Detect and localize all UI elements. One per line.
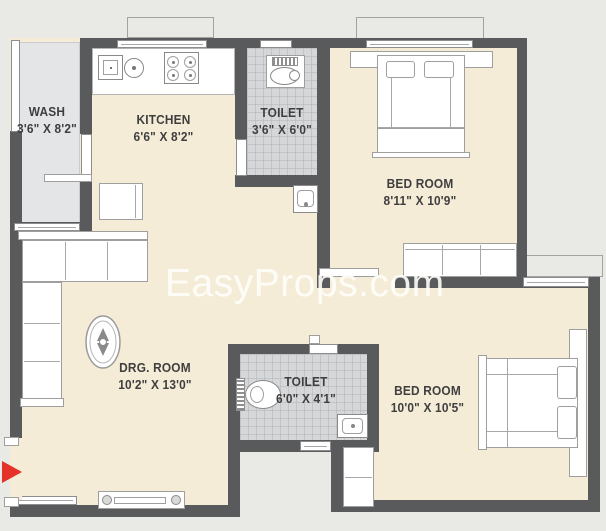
- burner-dot: [189, 74, 192, 77]
- room-name: WASH: [14, 104, 81, 121]
- floor-plan: WASH 3'6" X 8'2" KITCHEN 6'6" X 8'2" TOI…: [0, 0, 606, 531]
- wall: [317, 38, 330, 288]
- room-label-kitchen: KITCHEN 6'6" X 8'2": [96, 112, 232, 146]
- room-name: KITCHEN: [96, 112, 232, 129]
- toilet-bowl-dot: [289, 70, 300, 81]
- wash-door-opening: [81, 134, 92, 178]
- room-label-drawing-room: DRG. ROOM 10'2" X 13'0": [74, 360, 236, 394]
- room-label-bedroom2: BED ROOM 10'0" X 10'5": [363, 383, 491, 417]
- room-name: TOILET: [249, 374, 363, 391]
- toilet1-door-opening: [236, 139, 247, 176]
- room-dims: 10'0" X 10'5": [363, 400, 491, 417]
- room-label-wash: WASH 3'6" X 8'2": [14, 104, 81, 138]
- room-dims: 3'6" X 6'0": [247, 122, 317, 139]
- room-label-toilet2: TOILET 6'0" X 4'1": [249, 374, 363, 408]
- entrance-arrow-icon: [2, 461, 22, 483]
- sofa: [22, 282, 62, 399]
- pillow: [557, 366, 577, 399]
- room-dims: 6'0" X 4'1": [249, 391, 363, 408]
- pillow: [557, 406, 577, 439]
- wall: [80, 38, 92, 134]
- toilet1-vent-window: [260, 40, 292, 48]
- toilet-tank-icon: [236, 378, 245, 411]
- door-jamb: [4, 497, 19, 507]
- watermark: EasyProps.com: [165, 262, 435, 306]
- pillow: [424, 61, 454, 78]
- door-jamb: [4, 437, 19, 446]
- room-dims: 3'6" X 8'2": [14, 121, 81, 138]
- room-name: DRG. ROOM: [74, 360, 236, 377]
- room-label-bedroom1: BED ROOM 8'11" X 10'9": [351, 176, 490, 210]
- sofa: [22, 240, 148, 282]
- wash-door-leaf: [44, 174, 92, 182]
- pillow: [386, 61, 415, 78]
- wash-window: [14, 223, 80, 231]
- room-label-toilet1: TOILET 3'6" X 6'0": [247, 105, 317, 139]
- sofa-end: [20, 398, 64, 407]
- tv-unit-speaker-icon: [102, 495, 112, 505]
- bedroom2-window: [523, 277, 589, 287]
- sink-drain-icon: [110, 67, 112, 69]
- wall: [228, 344, 379, 354]
- projection-outline: [127, 17, 214, 38]
- room-dims: 8'11" X 10'9": [351, 193, 490, 210]
- wall: [10, 131, 22, 232]
- washbasin-drain-dot: [304, 202, 308, 207]
- kitchen-cabinet: [99, 183, 143, 220]
- toilet-tank-icon: [272, 57, 298, 66]
- projection-outline: [523, 255, 603, 277]
- kitchen-window: [117, 40, 207, 48]
- burner-dot: [172, 74, 175, 77]
- outside-right-of-bedroom1: [527, 38, 600, 277]
- tv-icon: [114, 497, 166, 504]
- wall: [517, 38, 527, 288]
- burner-dot: [189, 61, 192, 64]
- tv-unit-speaker-icon: [171, 495, 181, 505]
- drawing-room-window-sill: [13, 496, 77, 505]
- wardrobe: [343, 447, 374, 507]
- bedroom1-window: [366, 40, 473, 48]
- wall: [235, 38, 247, 139]
- door-jamb: [309, 335, 320, 344]
- duct-area: [240, 452, 331, 517]
- bed-base-strip: [372, 152, 470, 158]
- toilet2-door-opening: [309, 344, 338, 354]
- toilet2-vent-window: [300, 441, 331, 451]
- sofa-back: [18, 231, 148, 240]
- room-name: BED ROOM: [363, 383, 491, 400]
- washbasin-drain-dot: [351, 424, 355, 428]
- room-dims: 6'6" X 8'2": [96, 129, 232, 146]
- room-name: TOILET: [247, 105, 317, 122]
- burner-dot: [172, 61, 175, 64]
- bed-foot-bench: [377, 128, 465, 153]
- room-name: BED ROOM: [351, 176, 490, 193]
- hob-center-icon: [132, 66, 136, 70]
- room-dims: 10'2" X 13'0": [74, 377, 236, 394]
- projection-outline: [356, 17, 484, 40]
- wall: [588, 277, 600, 512]
